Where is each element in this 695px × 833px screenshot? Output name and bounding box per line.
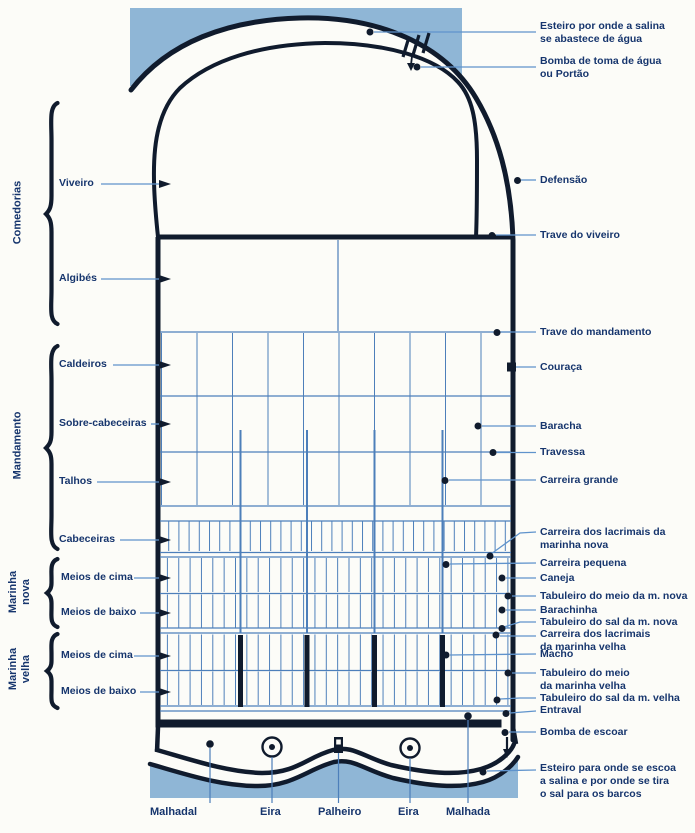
label-malhadal: Malhadal [150, 806, 197, 819]
label-tabuleiro-sal-nova: Tabuleiro do sal da m. nova [540, 616, 678, 629]
label-meios-de-cima-velha: Meios de cima [61, 649, 133, 662]
section-braces [46, 103, 58, 708]
palheiro-icon [334, 737, 343, 753]
label-meios-de-baixo-velha: Meios de baixo [61, 685, 136, 698]
label-tabuleiro-meio-nova: Tabuleiro do meio da m. nova [540, 590, 687, 603]
label-travessa: Travessa [540, 446, 585, 459]
label-viveiro: Viveiro [59, 177, 94, 190]
label-esteiro-abastece: Esteiro por onde a salina se abastece de… [540, 20, 665, 46]
pond-grid [160, 240, 511, 711]
malhada-dot-icon [464, 712, 472, 720]
label-marinha-velha: Marinha velha [7, 634, 33, 704]
label-tabuleiro-meio-velha: Tabuleiro do meio da marinha velha [540, 667, 630, 693]
label-mandamento: Mandamento [12, 381, 25, 511]
bottom-feature-icons [206, 712, 472, 757]
label-trave-viveiro: Trave do viveiro [540, 229, 620, 242]
salina-diagram-page: Comedorias Mandamento Marinha nova Marin… [0, 0, 695, 833]
label-baracha: Baracha [540, 420, 581, 433]
label-comedorias: Comedorias [12, 148, 25, 278]
label-caneja: Caneja [540, 572, 574, 585]
label-macho: Macho [540, 648, 573, 661]
label-bomba-toma: Bomba de toma de água ou Portão [540, 55, 661, 81]
label-caldeiros: Caldeiros [59, 358, 107, 371]
label-trave-mandamento: Trave do mandamento [540, 326, 651, 339]
label-couraca: Couraça [540, 361, 582, 374]
label-algibes: Algibés [59, 272, 97, 285]
label-malhada: Malhada [446, 806, 490, 819]
label-carreira-lacrimais-nova: Carreira dos lacrimais da marinha nova [540, 526, 665, 552]
label-tabuleiro-sal-velha: Tabuleiro do sal da m. velha [540, 692, 680, 705]
label-palheiro: Palheiro [318, 806, 361, 819]
brace-marinha-velha [47, 634, 58, 708]
label-carreira-pequena: Carreira pequena [540, 557, 626, 570]
label-carreira-grande: Carreira grande [540, 474, 618, 487]
couraca-square-marker [507, 363, 516, 372]
label-bomba-escoar: Bomba de escoar [540, 726, 628, 739]
brace-comedorias [46, 103, 58, 324]
malhadal-dot-icon [206, 740, 214, 748]
label-marinha-nova: Marinha nova [7, 557, 33, 627]
label-sobre-cabeceiras: Sobre-cabeceiras [59, 417, 147, 430]
label-barachinha: Barachinha [540, 604, 597, 617]
label-talhos: Talhos [59, 475, 92, 488]
label-cabeceiras: Cabeceiras [59, 533, 115, 546]
label-eira-2: Eira [398, 806, 419, 819]
label-esteiro-escoa: Esteiro para onde se escoa a salina e po… [540, 762, 676, 800]
brace-mandamento [46, 346, 58, 549]
label-meios-de-baixo-nova: Meios de baixo [61, 606, 136, 619]
label-defensao: Defensão [540, 174, 587, 187]
label-entraval: Entraval [540, 704, 581, 717]
brace-marinha-nova [47, 559, 58, 627]
label-eira-1: Eira [260, 806, 281, 819]
label-meios-de-cima-nova: Meios de cima [61, 571, 133, 584]
